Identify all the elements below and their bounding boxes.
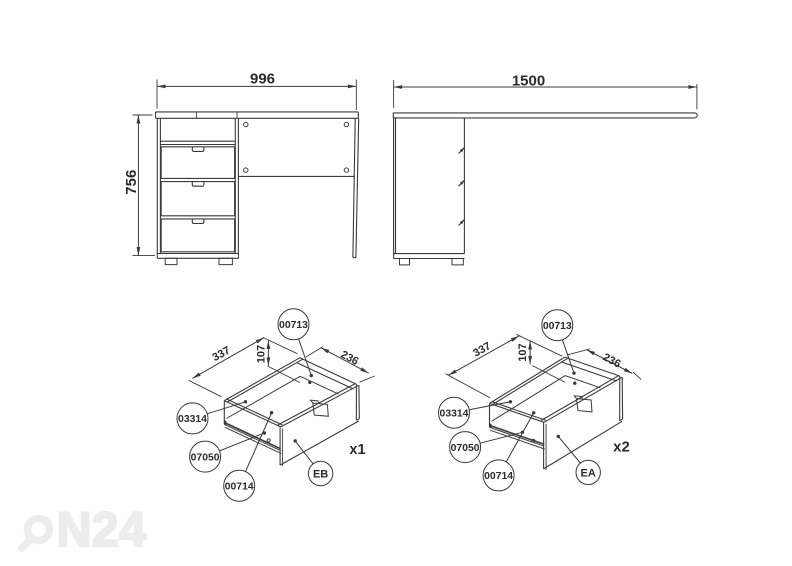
svg-text:07050: 07050 (191, 452, 220, 463)
svg-text:107: 107 (255, 345, 267, 363)
svg-text:107: 107 (517, 343, 529, 361)
svg-text:00713: 00713 (543, 321, 572, 332)
svg-text:x1: x1 (349, 442, 365, 458)
svg-text:EA: EA (581, 467, 596, 479)
svg-text:00713: 00713 (279, 320, 308, 331)
svg-text:756: 756 (123, 170, 140, 195)
svg-text:1500: 1500 (512, 72, 545, 89)
svg-text:07050: 07050 (451, 443, 480, 454)
svg-text:x2: x2 (613, 439, 630, 456)
svg-text:EB: EB (313, 468, 328, 480)
svg-text:N24: N24 (57, 504, 147, 557)
svg-text:03314: 03314 (178, 414, 207, 425)
svg-text:996: 996 (250, 70, 275, 87)
svg-text:00714: 00714 (225, 482, 254, 493)
svg-text:03314: 03314 (440, 408, 469, 419)
svg-text:00714: 00714 (484, 471, 513, 482)
